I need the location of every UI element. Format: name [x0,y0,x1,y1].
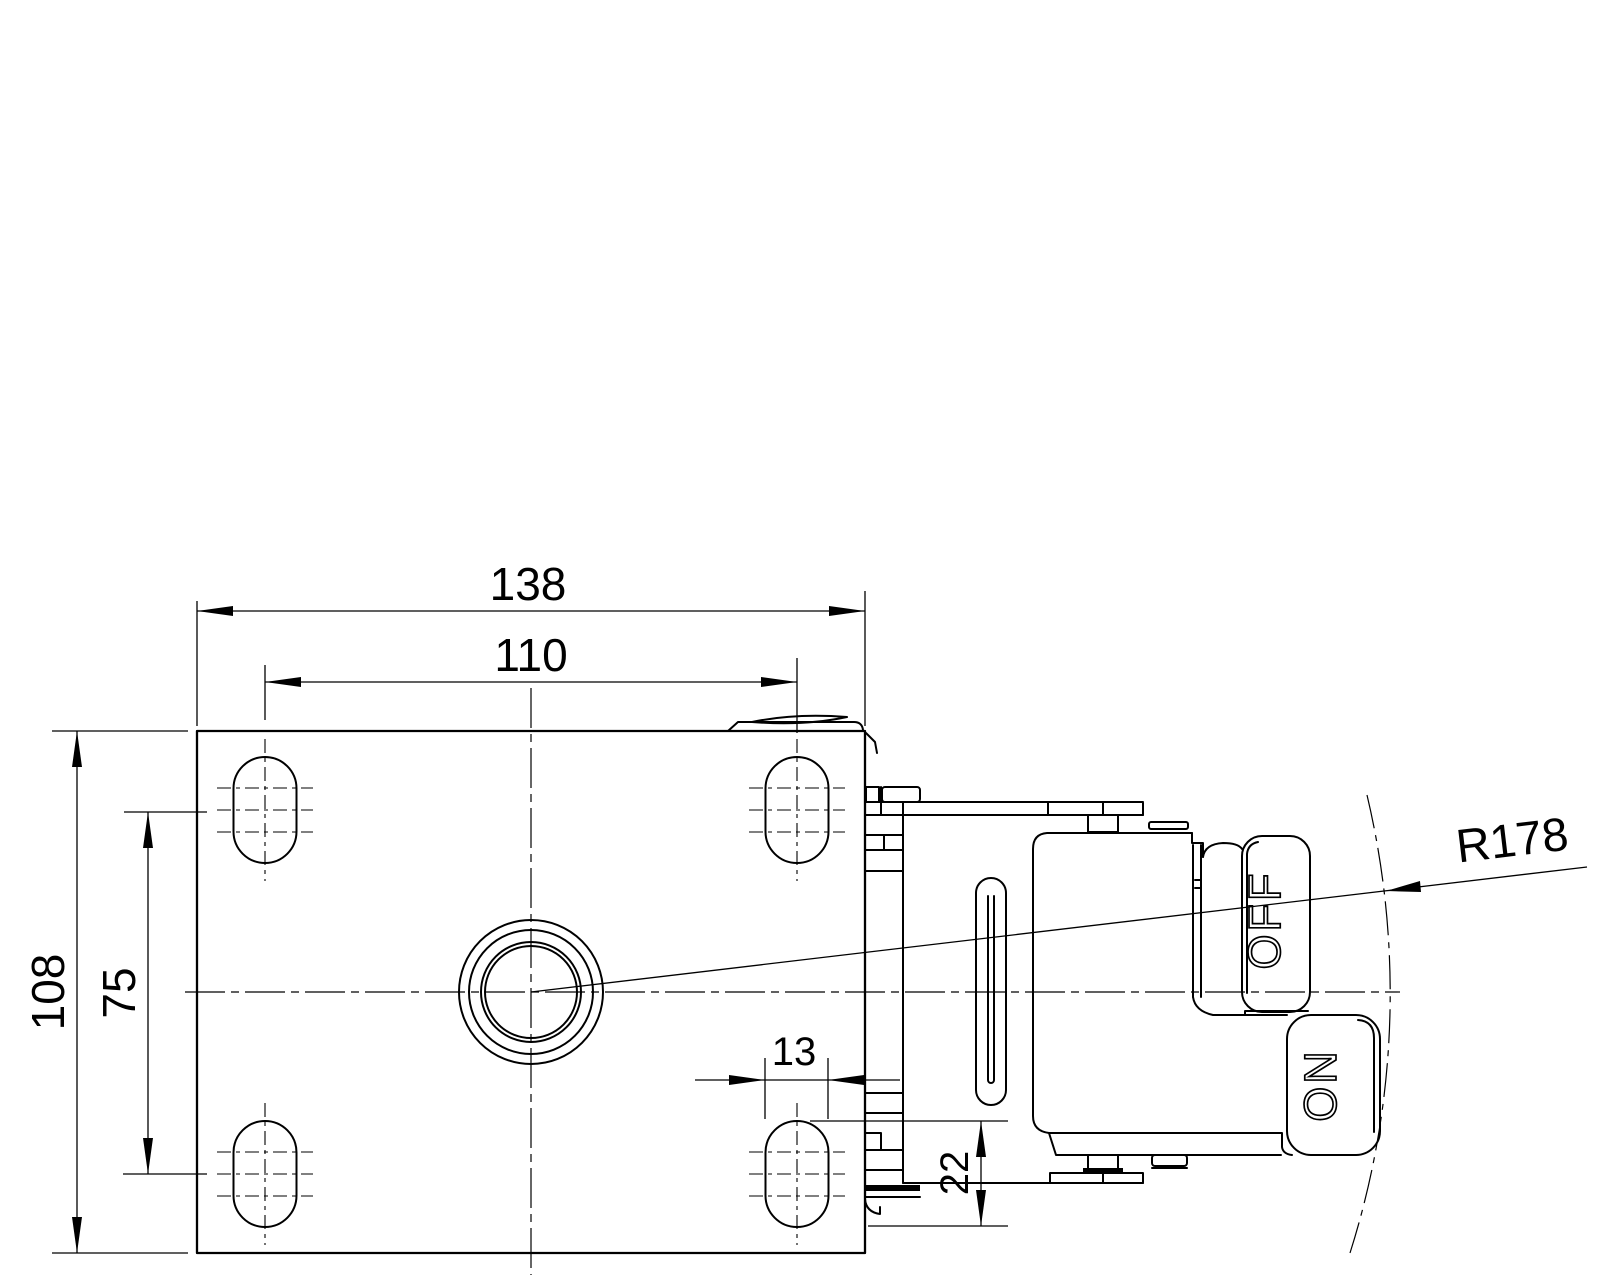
dim-plate-depth-value: 108 [22,954,74,1031]
dim-slot-width-value: 13 [772,1030,817,1074]
swing-radius-arrowhead [1386,881,1421,892]
on-pedal-label: ON [1295,1048,1346,1122]
arm-side-pad [1152,1155,1187,1166]
arm-lower-block [1050,1173,1143,1183]
on-pedal-inner-edge [1358,1020,1374,1132]
off-pedal-label: OFF [1239,871,1290,970]
slot-centerlines-bottom-left [217,1103,313,1245]
arm-bracket [1088,1155,1118,1168]
swing-radius-leader [531,867,1587,992]
slot-centerlines-top-left [217,739,313,881]
top-view [185,688,1400,1275]
side-plate-upper-rows [865,787,903,871]
dim-plate-width-value: 138 [490,558,567,610]
slot-centerlines-top-right [749,739,845,881]
technical-drawing-page: OFF ON 138 110 [0,0,1600,1280]
dimensions: 138 110 108 75 13 [22,558,1587,1253]
top-mid-block [1088,815,1118,832]
side-plate-lower-rows [865,1093,903,1170]
plate-edge-hook [866,733,877,753]
slot-centerlines-bottom-right [749,1103,845,1245]
swing-radius-dimension: R178 [531,795,1587,1253]
dim-slot-pitch-depth: 75 [93,812,207,1174]
dim-slot-pitch-width-value: 110 [494,629,567,681]
dim-slot-length-value: 22 [933,1151,977,1196]
actuator-arm [1049,1133,1292,1155]
drawing-canvas: OFF ON 138 110 [0,0,1600,1280]
pivot-boss [1203,843,1242,857]
side-plate-pad-small [866,787,879,802]
foot-hook [865,1197,920,1214]
guide-slot-inner [988,896,994,1083]
side-plate-top-rails [865,802,1143,815]
top-bar-dividers [1048,803,1143,815]
foot-friction-pad [865,1185,920,1191]
top-cap-plate [1149,822,1188,829]
swing-radius-value: R178 [1453,807,1571,873]
side-plate-pad-large [882,787,920,802]
dim-slot-pitch-depth-value: 75 [93,967,145,1018]
pedal-hinge-bracket [1192,833,1203,997]
gear-housing-body [1033,833,1192,1133]
